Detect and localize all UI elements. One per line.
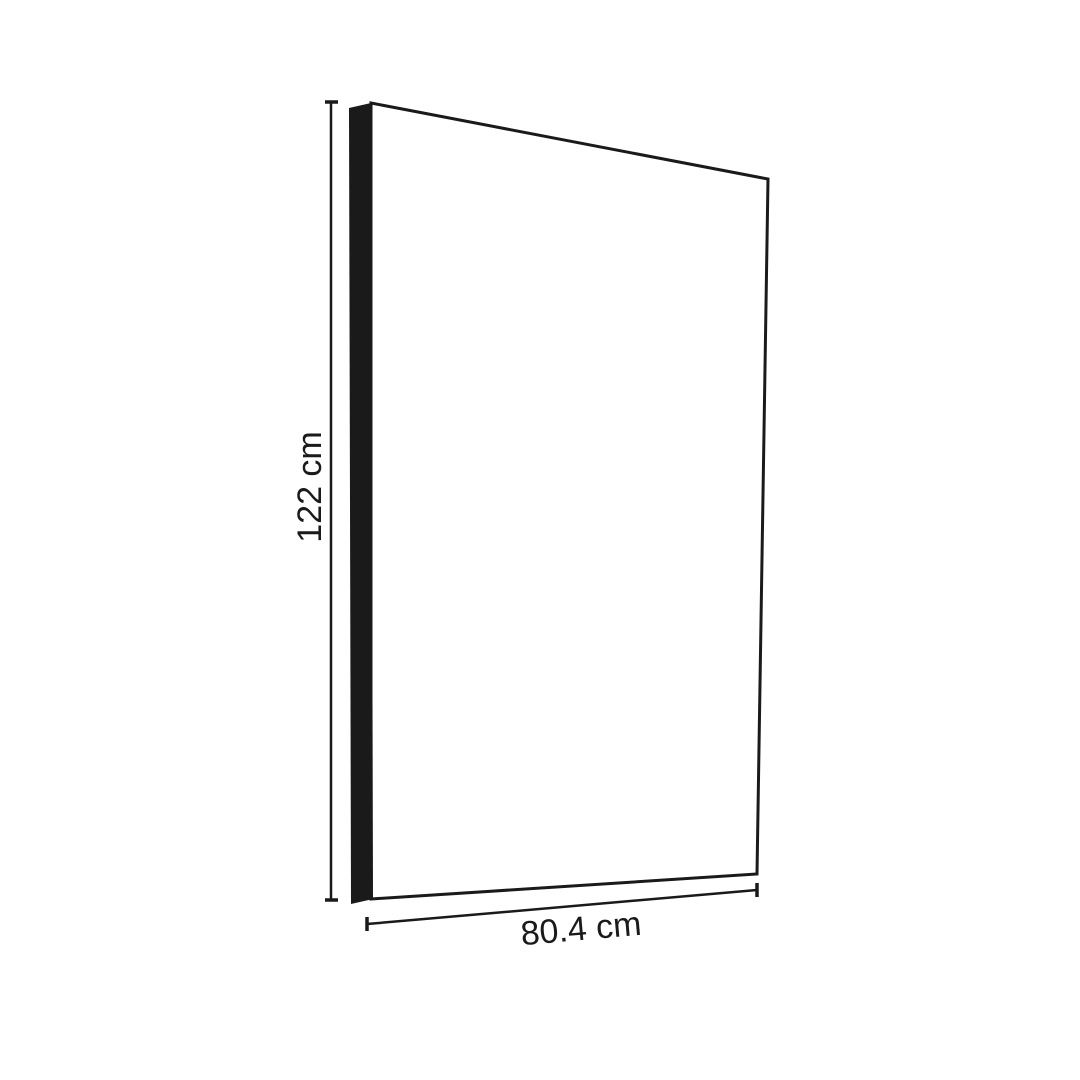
height-dimension-label: 122 cm	[293, 431, 327, 543]
panel-left-edge	[349, 103, 373, 904]
dimension-diagram: 122 cm 80.4 cm	[0, 0, 1080, 1080]
panel-face	[371, 103, 768, 899]
